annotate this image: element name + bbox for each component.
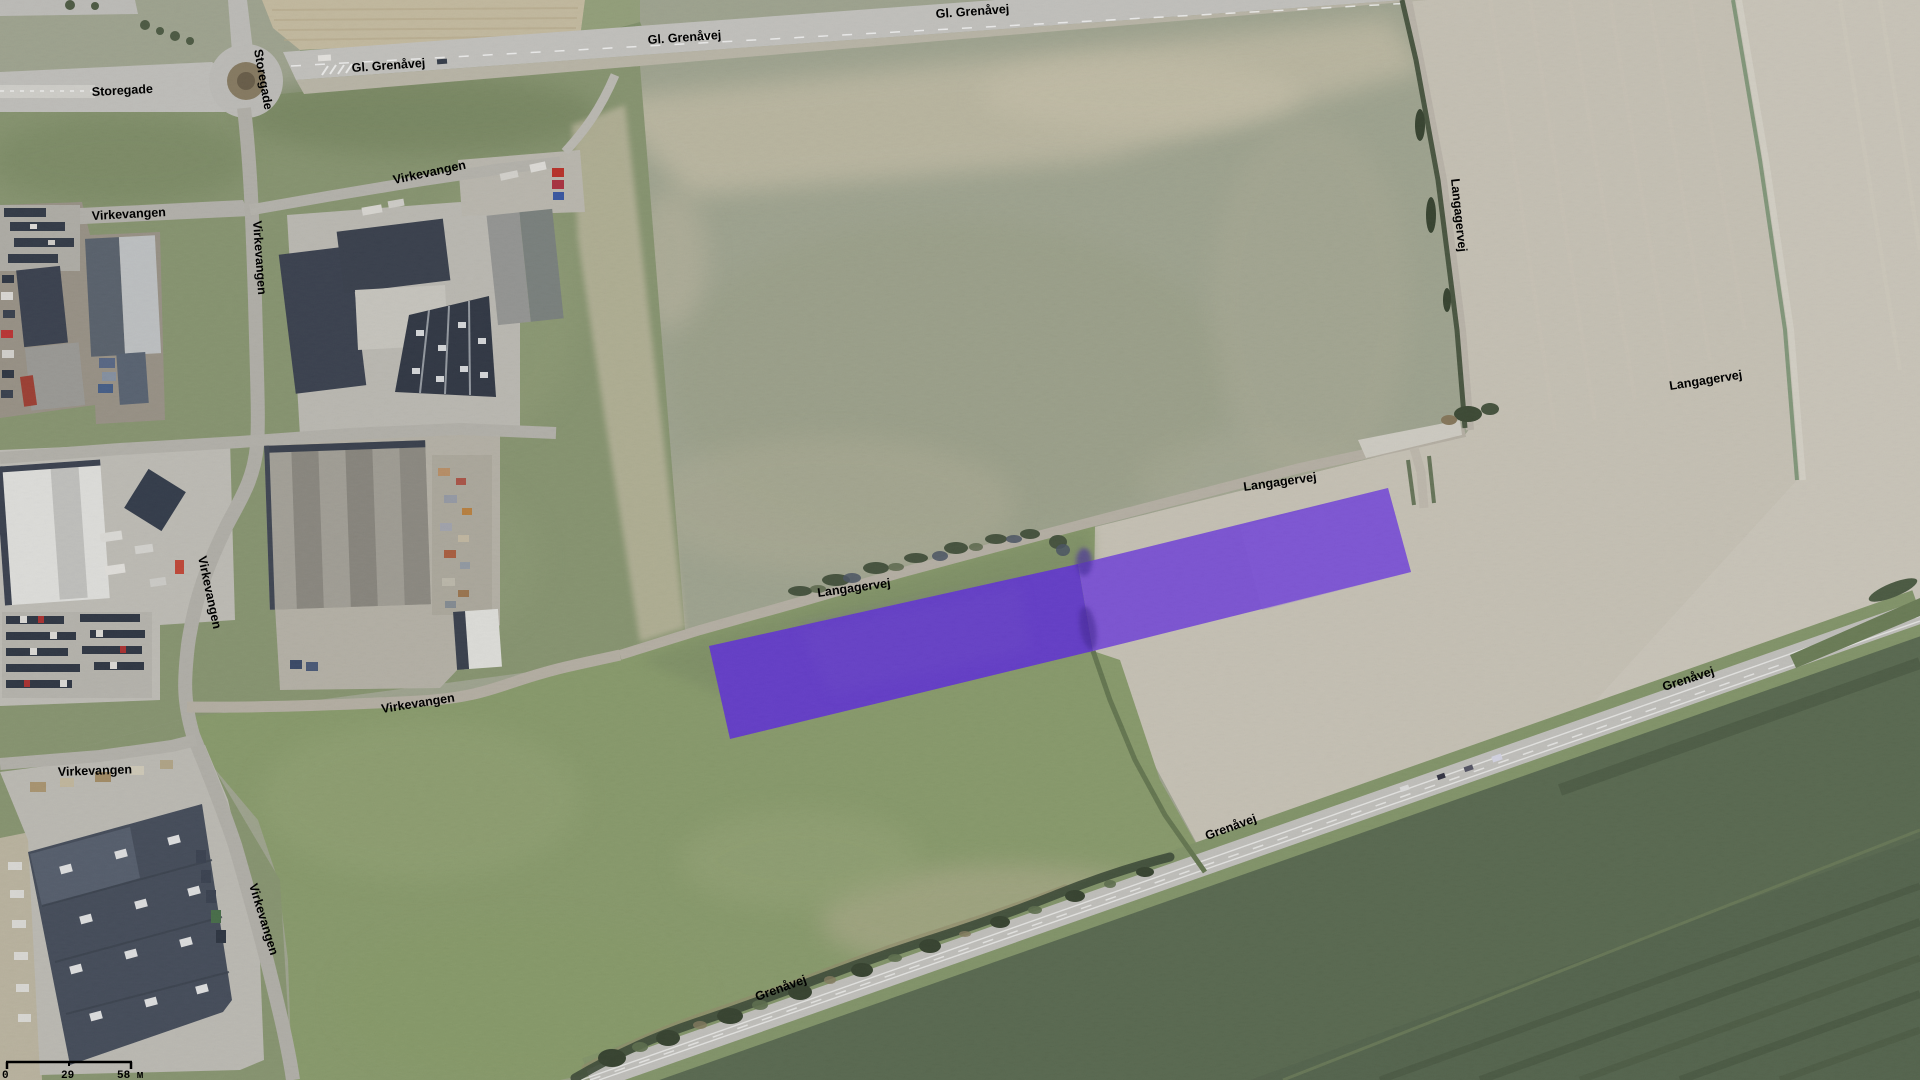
svg-text:58 м: 58 м	[117, 1070, 144, 1080]
svg-text:29: 29	[61, 1070, 74, 1080]
svg-text:0: 0	[2, 1070, 9, 1080]
svg-text:Virkevangen: Virkevangen	[58, 762, 133, 779]
